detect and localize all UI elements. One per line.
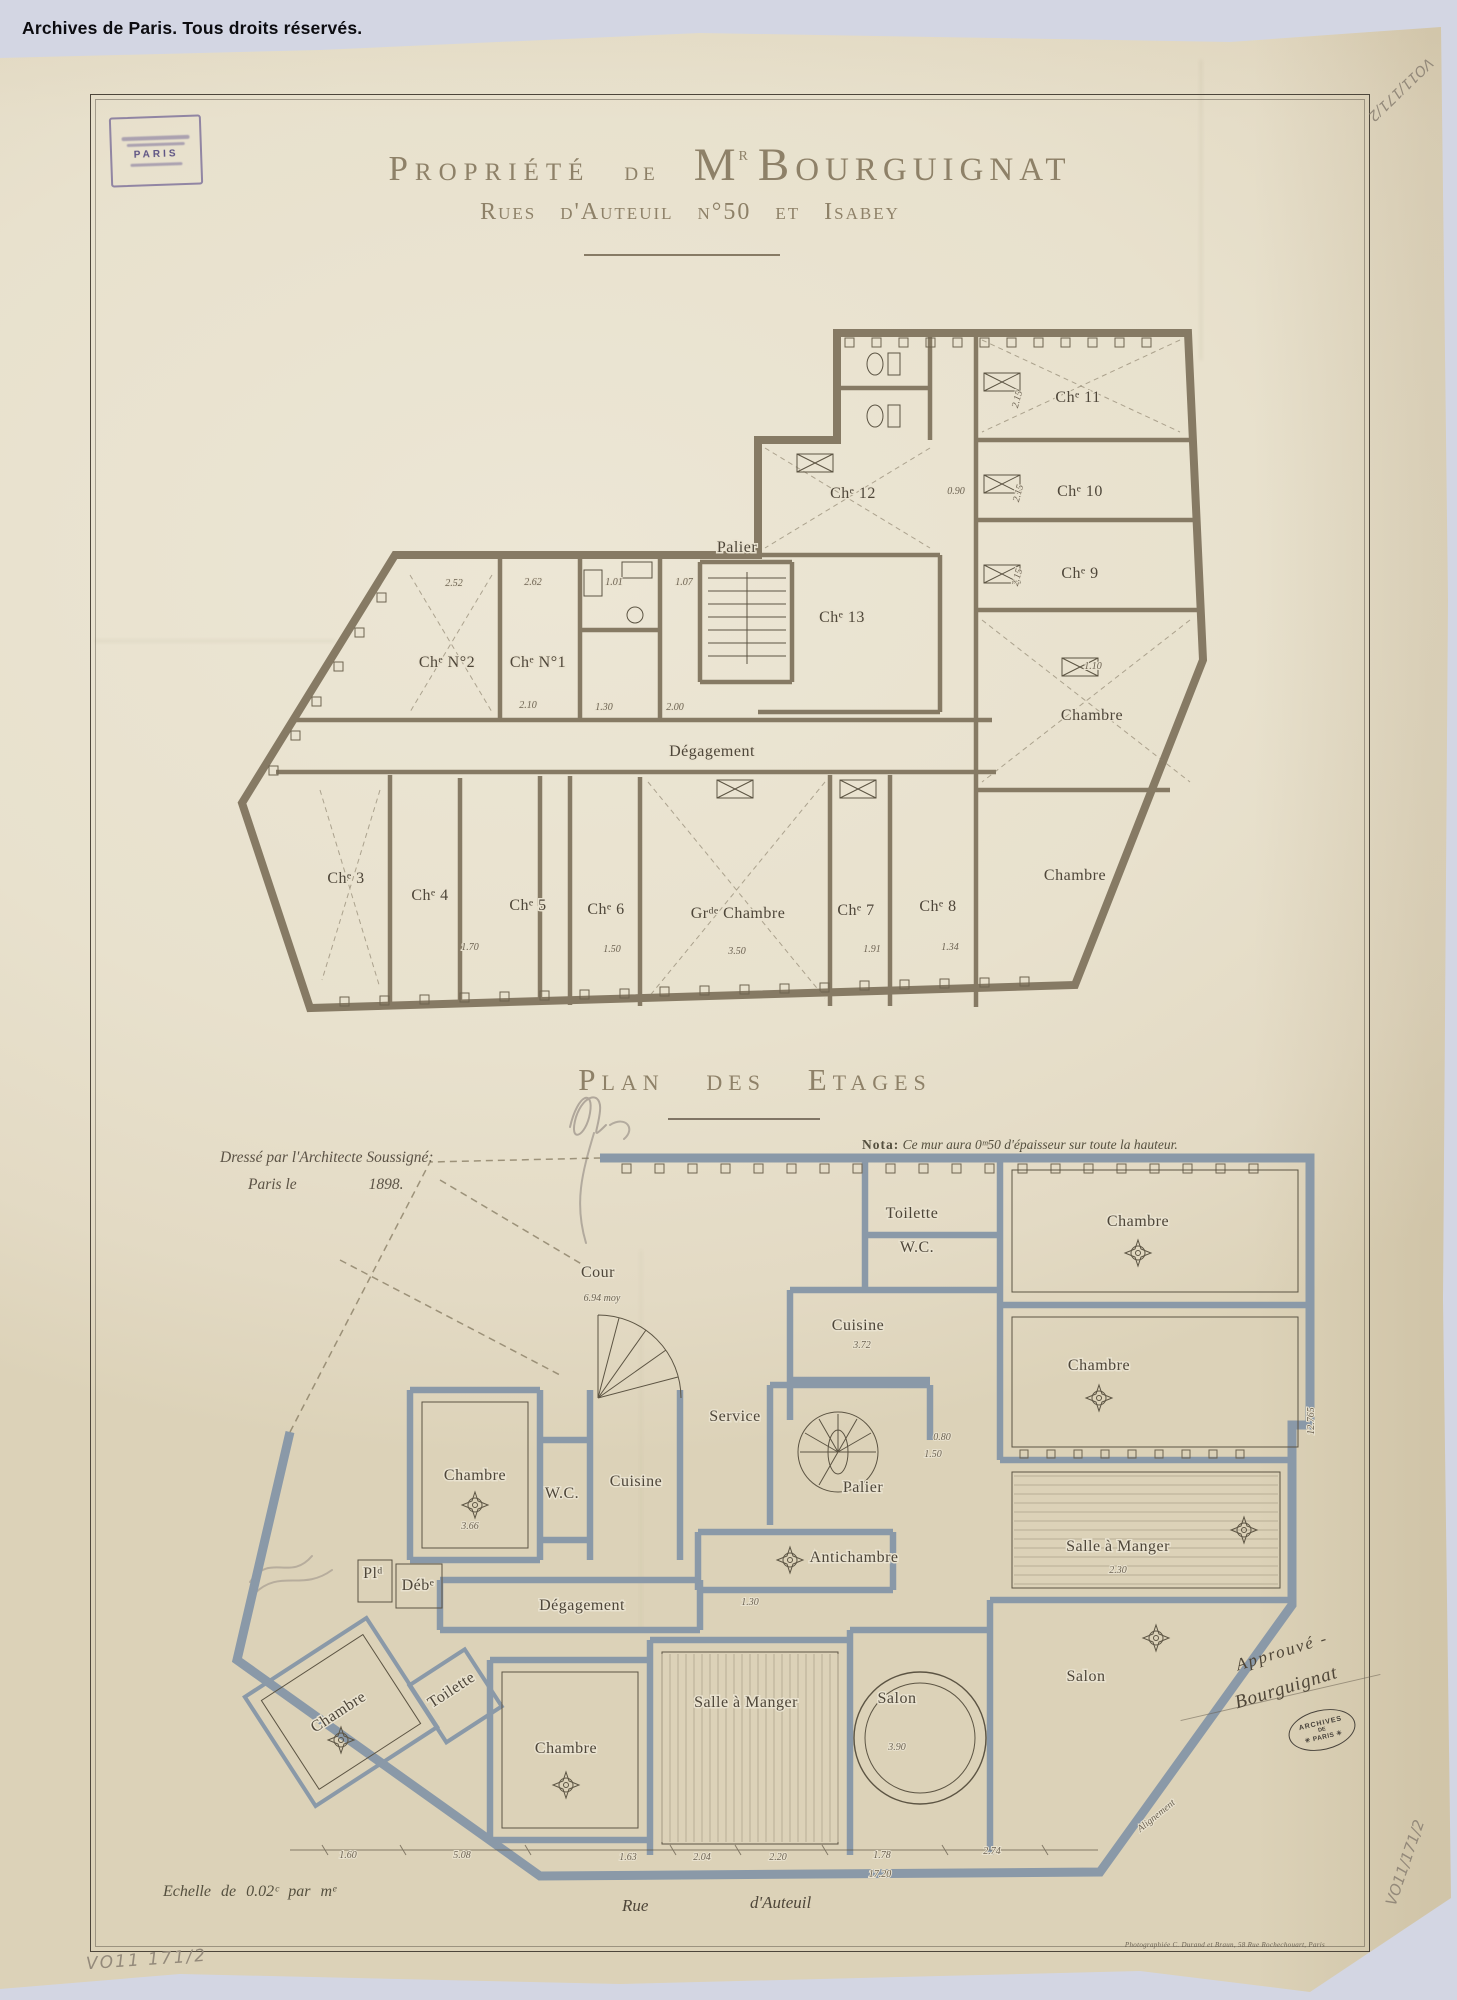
dimension-label: 5.08 [453, 1850, 471, 1861]
title-owner-name: Bourguignat [758, 139, 1072, 191]
room-label: Palier [843, 1479, 883, 1496]
dimension-label: 2.00 [666, 702, 684, 713]
dimension-label: 3.66 [460, 1521, 479, 1532]
room-label: Chᵉ 4 [411, 887, 448, 904]
dimension-label: 1.30 [741, 1597, 759, 1608]
dimension-label: 1.01 [605, 577, 623, 588]
plan2-panel-borders [358, 1170, 1298, 1844]
dimension-label: 3.50 [727, 946, 746, 957]
room-label: W.C. [545, 1485, 579, 1502]
dimension-label: 2.15 [1011, 483, 1026, 503]
dimension-label: 2.62 [524, 577, 542, 588]
room-label: Chᵉ 8 [919, 898, 956, 915]
dimension-label: 1.91 [863, 944, 881, 955]
archive-copyright-banner: Archives de Paris. Tous droits réservés. [22, 18, 362, 39]
room-label: Palier [717, 539, 757, 556]
dimension-label: 1.50 [603, 944, 621, 955]
room-label: Débᵉ [402, 1577, 435, 1594]
room-label: Toilette [886, 1205, 939, 1222]
dimension-label: 1.30 [595, 702, 613, 713]
room-label: Toilette [425, 1669, 478, 1712]
room-label: Chambre [1068, 1357, 1130, 1374]
plan2-facade-casements-top [622, 1164, 1258, 1173]
plan1-facade-casements-left [269, 593, 386, 775]
upper-floor-plan: Chᵉ N°2Chᵉ N°1PalierChᵉ 12Chᵉ 13Chᵉ 11Ch… [230, 320, 1220, 1020]
dimension-label: 1.34 [941, 942, 959, 953]
scale-note: Echelle de 0.02ᶜ par mᵉ [163, 1883, 336, 1901]
title-propriete: Propriété [388, 149, 590, 188]
plan1-stair-treads [708, 572, 786, 664]
scanned-paper-sheet: PARIS PropriétédeMrBourguignat Rues d'Au… [0, 0, 1457, 2000]
dimension-label: 1.78 [873, 1850, 891, 1861]
dimension-label: 2.15 [1010, 567, 1025, 587]
room-label: Chᵉ 5 [509, 897, 546, 914]
room-label: Cuisine [832, 1317, 884, 1334]
dimension-label: 1.07 [675, 577, 694, 588]
room-label: Dégagement [539, 1597, 625, 1614]
room-label: Antichambre [809, 1549, 898, 1566]
plan2-room-labels: ToiletteW.C.ChambreChambreCuisineCourSer… [308, 1205, 1170, 1757]
photographer-credit: Photographiée C. Durand et Braun, 58 Rue… [1080, 1941, 1370, 1949]
room-label: Grᵈᵉ Chambre [691, 905, 786, 922]
dimension-label: 1.50 [924, 1449, 942, 1460]
dimension-label: 2.74 [983, 1846, 1001, 1857]
room-label: Salle à Manger [1066, 1538, 1170, 1555]
room-label: Salle à Manger [694, 1694, 798, 1711]
plan1-facade-casements-top [845, 338, 1151, 347]
street-label-auteuil: d'Auteuil [750, 1893, 811, 1913]
title-underline [584, 254, 780, 256]
plan2-parquet-dining-right [1014, 1476, 1278, 1584]
room-label: Cour [581, 1264, 615, 1281]
room-label: Chambre [444, 1467, 506, 1484]
room-label: Salon [1067, 1668, 1106, 1685]
room-label: Chᵉ 11 [1055, 389, 1100, 406]
room-label: Chᵉ 10 [1057, 483, 1103, 500]
dimension-label: 3.90 [887, 1742, 906, 1753]
call-number-right-margin: VO11/171/2 [1382, 1817, 1428, 1907]
room-label: Chᵉ 6 [587, 901, 624, 918]
dimension-label: 1.70 [461, 942, 479, 953]
call-number-top-right: VO11/171/2 [1365, 54, 1436, 124]
plan2-parquet-dining-bottom [662, 1654, 838, 1842]
room-label: Chambre [535, 1740, 597, 1757]
plan2-salon-rotunda [854, 1672, 986, 1804]
dimension-label: 1.60 [339, 1850, 357, 1861]
room-label: Chᵉ 3 [327, 870, 364, 887]
sheet-title: PropriétédeMrBourguignat [40, 138, 1420, 192]
plan2-service-stair-fan [598, 1315, 681, 1398]
dimension-label: 3.72 [852, 1340, 871, 1351]
dimension-label: 17.20 [869, 1869, 892, 1880]
room-label: Dégagement [669, 743, 755, 760]
dimension-label: 2.04 [693, 1852, 711, 1863]
title-owner-initial: M [694, 139, 739, 191]
room-label: Service [709, 1408, 760, 1425]
room-label: Chᵉ 7 [837, 902, 874, 919]
dimension-label: 2.10 [519, 700, 537, 711]
dimension-label: 1.63 [619, 1852, 637, 1863]
room-label: Chᵉ 13 [819, 609, 865, 626]
dimension-label: 1.10 [1084, 661, 1102, 672]
sheet-subtitle-address: Rues d'Auteuil n°50 et Isabey [0, 199, 1380, 226]
dimension-label: 6.94 moy [584, 1293, 621, 1304]
room-label: Chᵉ N°2 [419, 654, 475, 671]
room-label: Plᵈ [363, 1565, 383, 1582]
dimension-label: 2.20 [769, 1852, 787, 1863]
room-label: Chambre [1061, 707, 1123, 724]
street-label-rue: Rue [622, 1896, 648, 1916]
room-label: Chᵉ N°1 [510, 654, 566, 671]
room-label: Chambre [1107, 1213, 1169, 1230]
title-owner-superscript: r [739, 143, 748, 165]
room-label: W.C. [900, 1239, 934, 1256]
title-de: de [624, 156, 659, 186]
dimension-label: 2.52 [445, 578, 463, 589]
room-label: Cuisine [610, 1473, 662, 1490]
dimension-label: 12.765 [1306, 1407, 1317, 1435]
dimension-label: 0.90 [947, 486, 965, 497]
dimension-label: 0.80 [933, 1432, 951, 1443]
room-label: Chᵉ 9 [1061, 565, 1098, 582]
dimension-label: 2.15 [1010, 389, 1025, 409]
room-label: Salon [878, 1690, 917, 1707]
dimension-label: 2.30 [1109, 1565, 1127, 1576]
scanned-archival-plan: { "page": { "copyright": "Archives de Pa… [0, 0, 1457, 2000]
room-label: Chambre [1044, 867, 1106, 884]
room-label: Chᵉ 12 [830, 485, 876, 502]
lower-floor-plan: ToiletteW.C.ChambreChambreCuisineCourSer… [230, 1140, 1330, 1900]
